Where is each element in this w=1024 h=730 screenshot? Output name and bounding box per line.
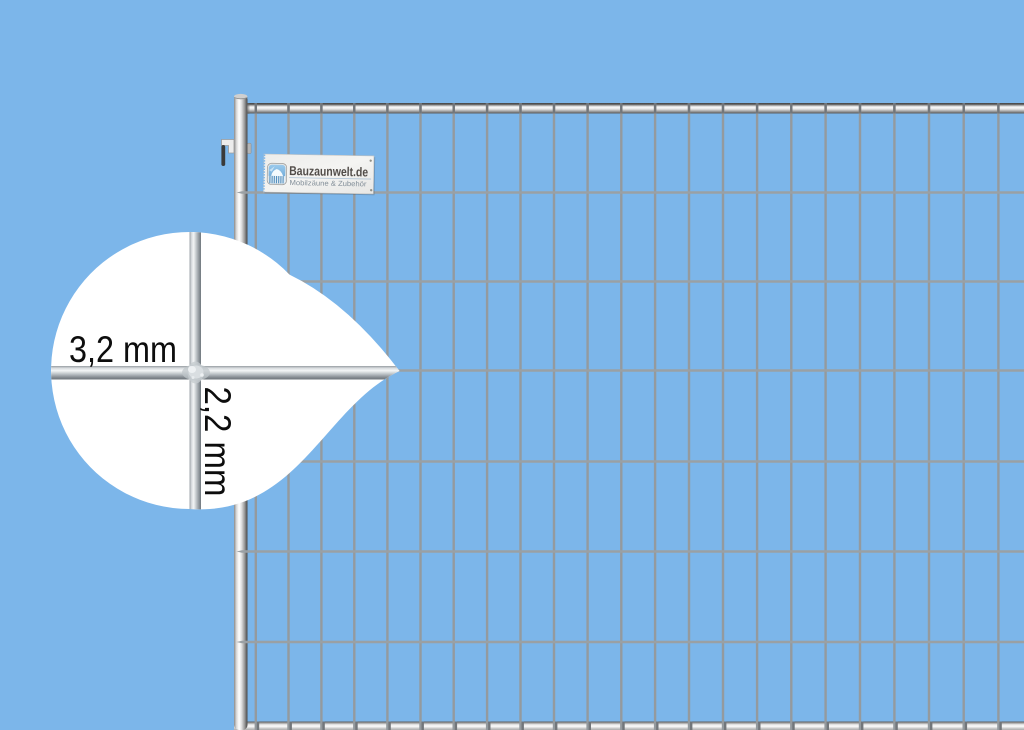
svg-text:2,2 mm: 2,2 mm bbox=[197, 387, 238, 497]
svg-text:3,2 mm: 3,2 mm bbox=[69, 329, 177, 370]
svg-text:Bauzaunwelt.de: Bauzaunwelt.de bbox=[289, 163, 368, 179]
svg-text:Mobilzäune & Zubehör: Mobilzäune & Zubehör bbox=[289, 178, 367, 188]
